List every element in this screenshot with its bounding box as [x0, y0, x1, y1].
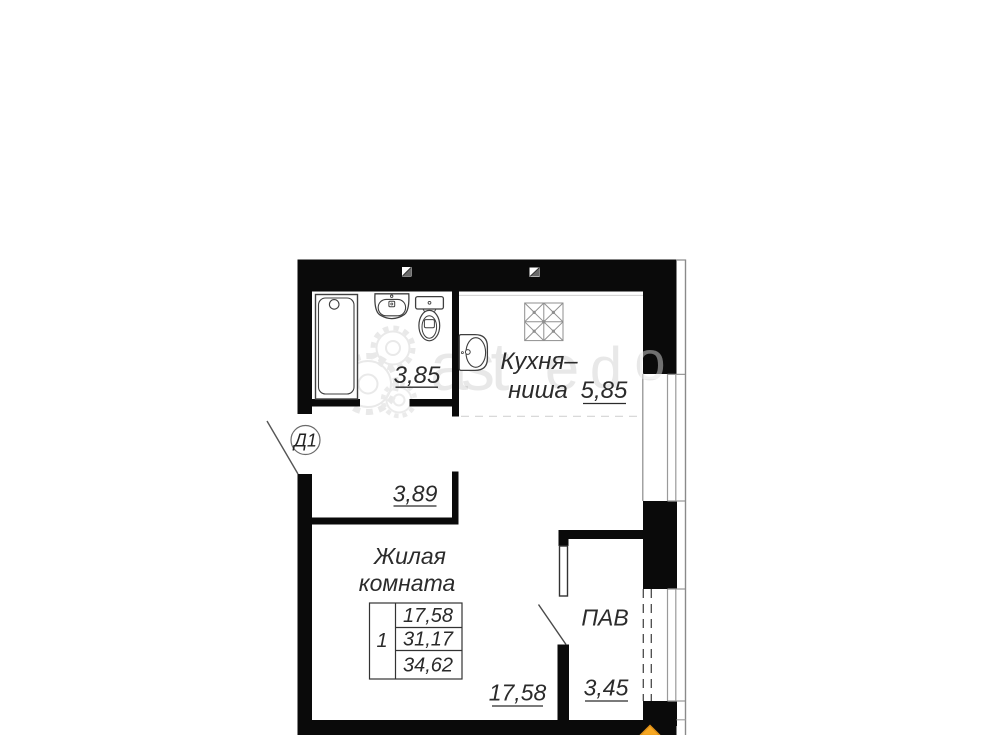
svg-text:34,62: 34,62 — [403, 655, 453, 677]
svg-text:31,17: 31,17 — [403, 629, 454, 651]
svg-text:Кухня–: Кухня– — [500, 348, 578, 375]
svg-text:ниша: ниша — [508, 377, 568, 404]
svg-text:Д1: Д1 — [292, 431, 317, 451]
svg-text:17,58: 17,58 — [489, 680, 547, 706]
svg-text:5,85: 5,85 — [581, 377, 628, 404]
svg-text:3,89: 3,89 — [393, 481, 438, 507]
svg-text:ПАВ: ПАВ — [581, 605, 628, 631]
svg-text:1: 1 — [376, 630, 387, 652]
svg-text:Жилая: Жилая — [373, 543, 446, 569]
svg-text:17,58: 17,58 — [403, 605, 453, 627]
svg-text:3,45: 3,45 — [584, 675, 629, 701]
svg-text:комната: комната — [359, 570, 456, 596]
svg-text:3,85: 3,85 — [394, 362, 441, 389]
